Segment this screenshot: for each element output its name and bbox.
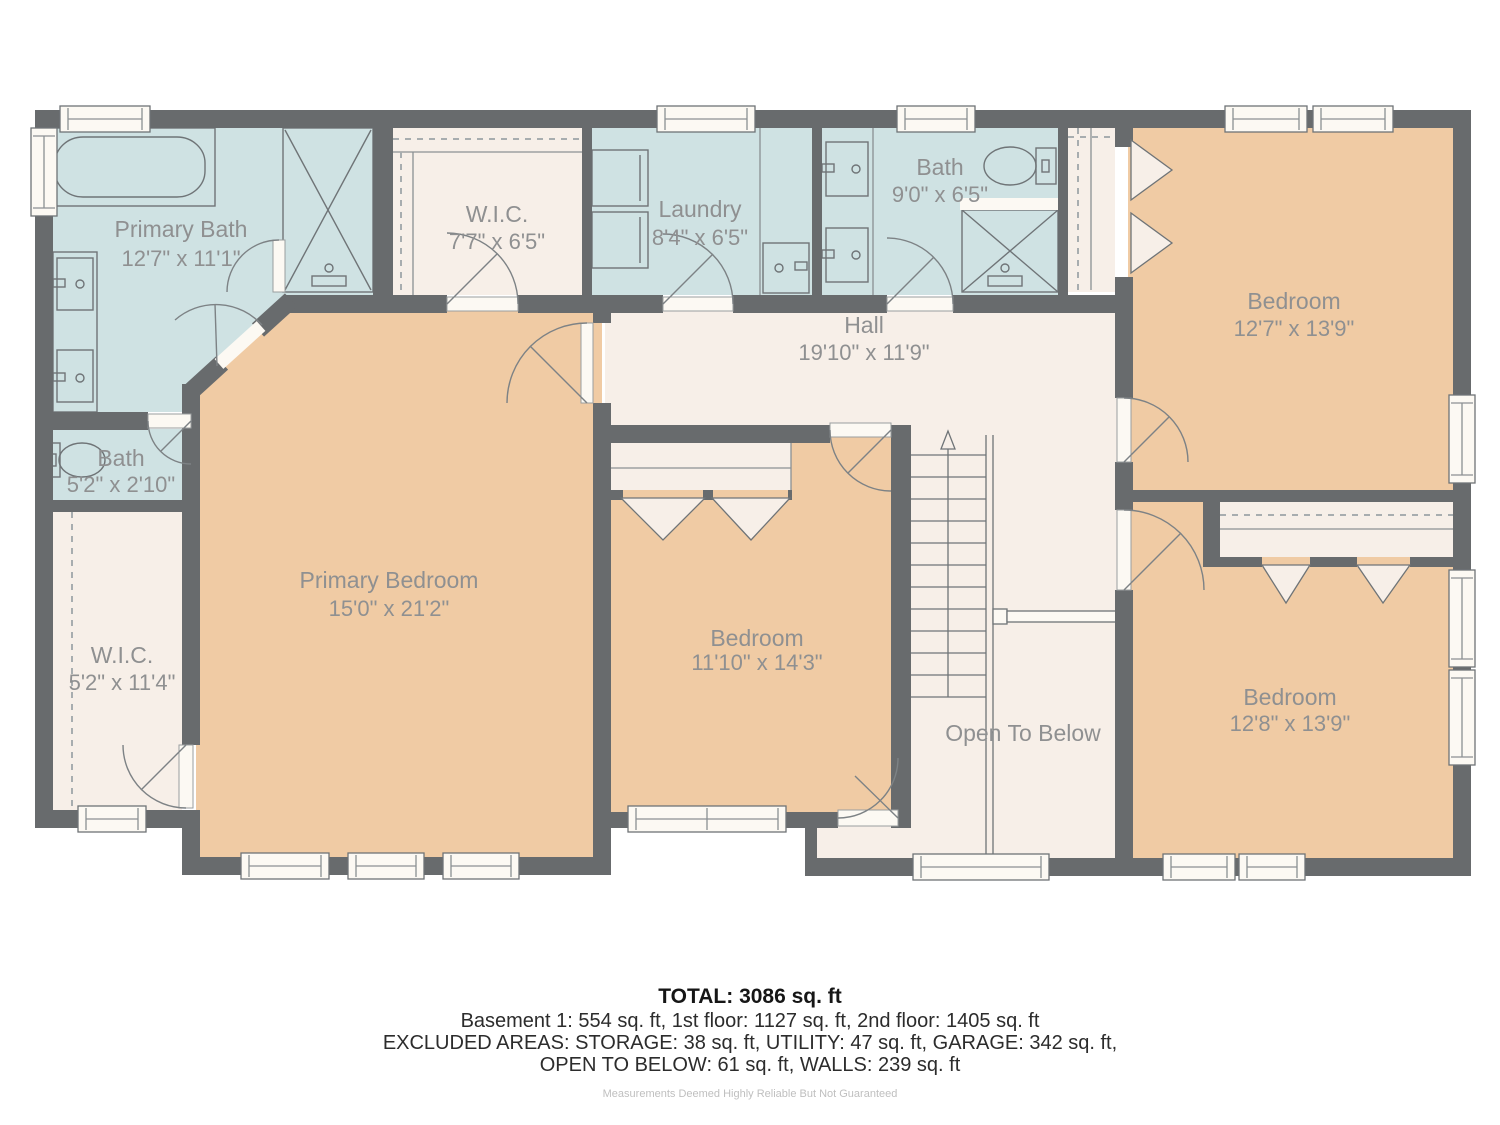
room-dims: 12'8" x 13'9" <box>1230 711 1351 736</box>
room-label: Primary Bath <box>115 216 248 242</box>
room-label: Hall <box>844 312 884 338</box>
room-dims: 12'7" x 13'9" <box>1234 316 1355 341</box>
wall-segment <box>1115 462 1133 510</box>
footer-areas-line: Basement 1: 554 sq. ft, 1st floor: 1127 … <box>461 1010 1040 1032</box>
wall-segment <box>733 295 887 313</box>
window <box>31 128 57 216</box>
stair-railing <box>993 609 1117 624</box>
window <box>348 853 424 879</box>
window <box>1225 106 1307 132</box>
footer-excluded-line: EXCLUDED AREAS: STORAGE: 38 sq. ft, UTIL… <box>383 1032 1117 1054</box>
wall-segment <box>582 128 592 313</box>
wall-segment <box>593 403 611 875</box>
window <box>1449 670 1475 765</box>
window <box>443 853 519 879</box>
room-dims: 5'2" x 11'4" <box>69 670 176 695</box>
room-label: Bedroom <box>710 625 803 651</box>
room-label: Open To Below <box>945 720 1101 746</box>
window <box>657 106 755 132</box>
window <box>1163 854 1235 880</box>
window <box>78 806 146 832</box>
window <box>241 853 329 879</box>
window <box>913 854 1049 880</box>
wall-segment <box>1115 590 1133 876</box>
room-label: W.I.C. <box>466 201 529 227</box>
wall-segment <box>805 828 817 876</box>
wall-segment <box>1310 557 1357 567</box>
wall-segment <box>611 425 830 443</box>
wall-segment <box>182 384 200 745</box>
window-double <box>628 806 786 832</box>
window <box>1449 395 1475 483</box>
room-dims: 5'2" x 2'10" <box>67 472 175 497</box>
room-dims: 8'4" x 6'5" <box>652 225 748 250</box>
room-label: Laundry <box>658 196 742 222</box>
wall-segment <box>1410 557 1455 567</box>
room-label: Bedroom <box>1247 288 1340 314</box>
wall-segment <box>35 412 148 430</box>
wall-segment <box>1133 490 1453 502</box>
wall-segment <box>35 110 53 828</box>
wall-segment <box>1220 557 1262 567</box>
room-label: Bedroom <box>1243 684 1336 710</box>
room-dims: 9'0" x 6'5" <box>892 182 988 207</box>
room-label: Bath <box>97 445 144 471</box>
footer-excluded-line2: OPEN TO BELOW: 61 sq. ft, WALLS: 239 sq.… <box>540 1054 961 1076</box>
footer-total: TOTAL: 3086 sq. ft <box>658 985 842 1008</box>
wall-segment <box>953 295 1133 313</box>
room-dims: 15'0" x 21'2" <box>329 596 450 621</box>
wall-segment <box>891 425 911 828</box>
window <box>1239 854 1305 880</box>
room-dims: 11'10" x 14'3" <box>691 650 822 675</box>
footer: TOTAL: 3086 sq. ft Basement 1: 554 sq. f… <box>383 985 1117 1100</box>
wall-segment <box>1058 128 1068 313</box>
room-label: Bath <box>916 154 963 180</box>
wall-segment <box>518 295 663 313</box>
wall-segment <box>812 128 822 313</box>
wall-segment <box>1115 110 1133 147</box>
footer-disclaimer: Measurements Deemed Highly Reliable But … <box>603 1088 898 1100</box>
floor-plan: Primary Bath 12'7" x 11'1" W.I.C. 7'7" x… <box>0 0 1500 1125</box>
room-dims: 19'10" x 11'9" <box>798 340 929 365</box>
window <box>60 106 150 132</box>
room-dims: 12'7" x 11'1" <box>121 246 240 271</box>
wall-segment <box>35 500 182 512</box>
room-label: Primary Bedroom <box>300 567 479 593</box>
room-label: W.I.C. <box>91 642 154 668</box>
closet-middle-floor <box>611 443 791 490</box>
window <box>1313 106 1393 132</box>
window <box>897 106 975 132</box>
floor-plan-page: Primary Bath 12'7" x 11'1" W.I.C. 7'7" x… <box>0 0 1500 1125</box>
wall-segment <box>373 128 393 313</box>
window <box>1449 570 1475 667</box>
room-dims: 7'7" x 6'5" <box>449 229 545 254</box>
wall-segment <box>283 295 447 313</box>
